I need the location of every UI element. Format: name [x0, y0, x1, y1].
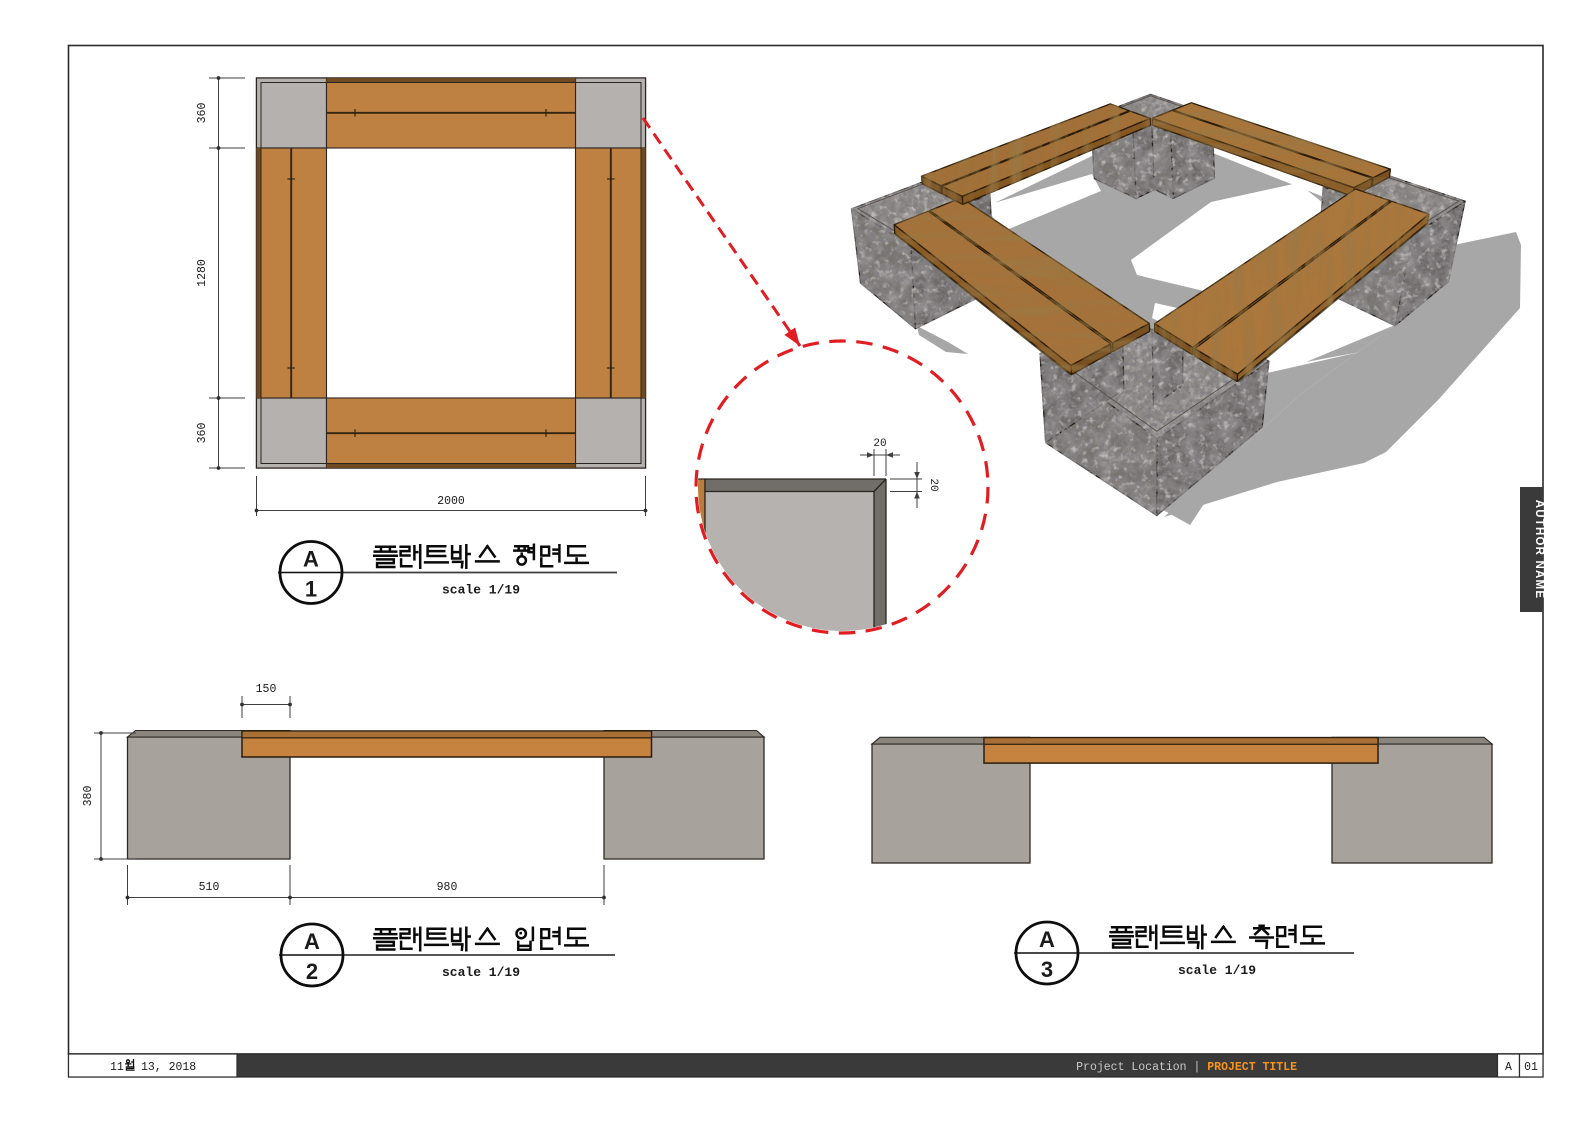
svg-text:3: 3 — [1041, 957, 1053, 982]
svg-text:13, 2018: 13, 2018 — [141, 1061, 196, 1074]
svg-text:1280: 1280 — [196, 259, 209, 287]
svg-text:A: A — [1039, 927, 1055, 952]
svg-text:980: 980 — [437, 881, 458, 894]
svg-text:360: 360 — [196, 423, 209, 444]
svg-text:A: A — [304, 929, 320, 954]
svg-text:A: A — [303, 547, 319, 572]
svg-text:20: 20 — [873, 438, 886, 450]
svg-text:20: 20 — [927, 478, 939, 491]
svg-text:2000: 2000 — [437, 495, 465, 508]
svg-text:AUTHOR NAME: AUTHOR NAME — [1533, 500, 1545, 599]
svg-text:Project Location | PROJECT TIT: Project Location | PROJECT TITLE — [1076, 1061, 1297, 1074]
svg-text:150: 150 — [256, 683, 277, 696]
svg-text:510: 510 — [199, 881, 220, 894]
svg-text:1: 1 — [305, 577, 317, 602]
svg-text:scale 1/19: scale 1/19 — [1178, 963, 1256, 978]
svg-text:scale 1/19: scale 1/19 — [442, 965, 520, 980]
svg-text:A: A — [1505, 1061, 1512, 1074]
svg-text:380: 380 — [82, 786, 95, 807]
svg-text:2: 2 — [306, 959, 318, 984]
svg-text:scale 1/19: scale 1/19 — [442, 583, 520, 598]
svg-text:360: 360 — [196, 103, 209, 124]
svg-text:11: 11 — [110, 1061, 124, 1074]
svg-text:01: 01 — [1524, 1061, 1538, 1074]
